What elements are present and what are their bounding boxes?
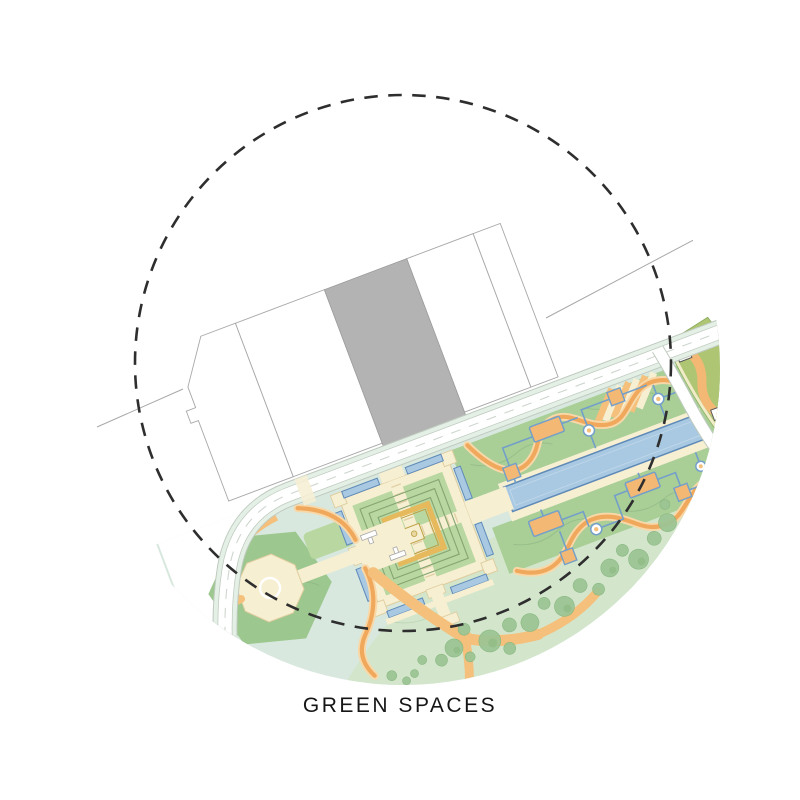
site-plan-svg xyxy=(0,0,800,800)
site-plan-figure: GREEN SPACES xyxy=(0,0,800,800)
boundary-line-east xyxy=(546,236,701,318)
diagram-caption: GREEN SPACES xyxy=(0,694,800,718)
